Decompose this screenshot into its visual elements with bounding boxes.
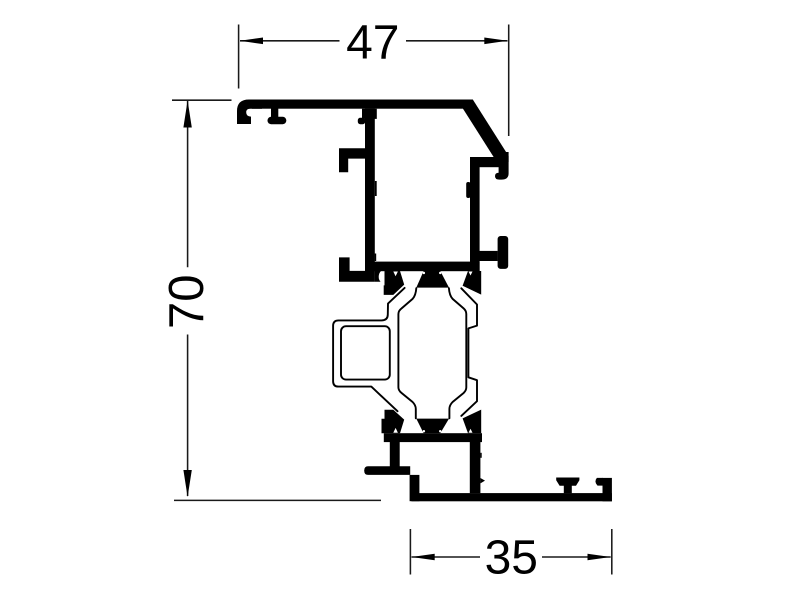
- svg-text:47: 47: [346, 16, 399, 69]
- svg-text:35: 35: [485, 532, 538, 585]
- svg-text:70: 70: [160, 275, 214, 330]
